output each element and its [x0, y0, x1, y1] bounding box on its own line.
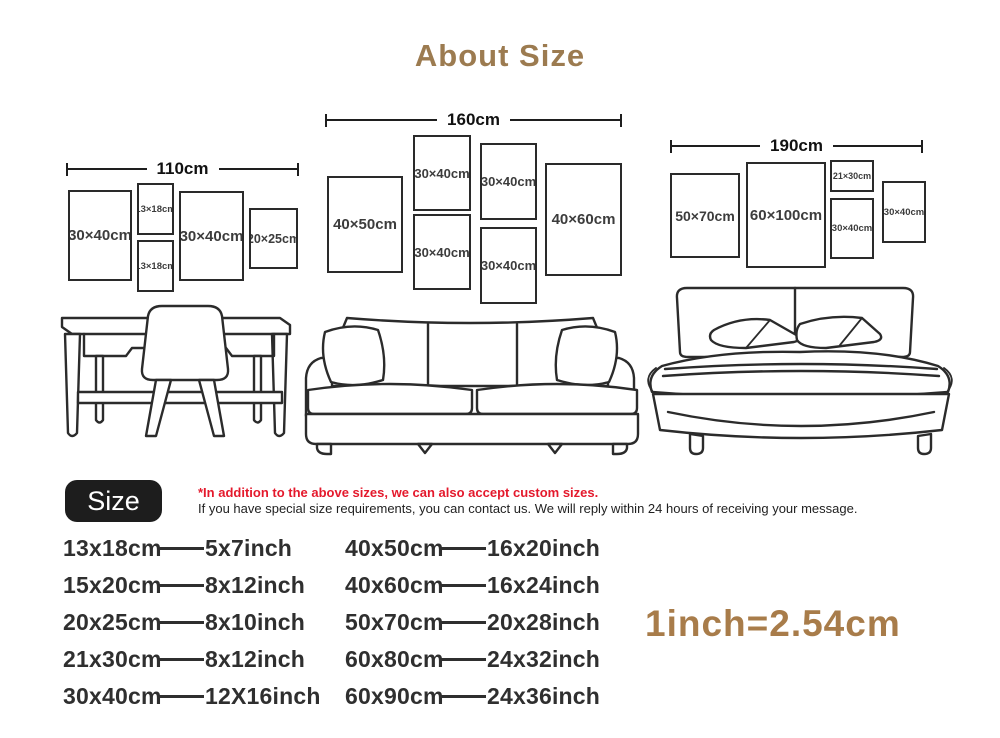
sofa-illustration	[306, 318, 638, 454]
size-badge: Size	[65, 480, 162, 522]
custom-size-note: *In addition to the above sizes, we can …	[198, 485, 598, 500]
inch-size: 8x10inch	[204, 609, 305, 636]
measure-label: 160cm	[447, 110, 500, 130]
dash-connector	[440, 695, 486, 698]
wall-frame-30x40: 30×40cm	[68, 190, 132, 281]
dash-connector	[158, 621, 204, 624]
measure-line	[510, 119, 620, 121]
conversion-row: 21x30cm8x12inch	[63, 641, 321, 678]
cm-size: 21x30cm	[63, 646, 158, 673]
inch-size: 8x12inch	[204, 646, 305, 673]
cm-size: 40x50cm	[345, 535, 440, 562]
cm-size: 50x70cm	[345, 609, 440, 636]
conversion-row: 30x40cm12X16inch	[63, 678, 321, 715]
inch-size: 16x24inch	[486, 572, 600, 599]
wall-frame-13x18: 13×18cm	[137, 183, 174, 235]
dash-connector	[440, 547, 486, 550]
measure-tick-right	[620, 114, 622, 127]
conversion-row: 15x20cm8x12inch	[63, 567, 321, 604]
cm-size: 13x18cm	[63, 535, 158, 562]
width-measure-160cm: 160cm	[325, 111, 622, 129]
measure-tick-right	[297, 163, 299, 176]
conversion-row: 40x50cm16x20inch	[345, 530, 600, 567]
dash-connector	[158, 658, 204, 661]
conversion-column-right: 40x50cm16x20inch 40x60cm16x24inch 50x70c…	[345, 530, 600, 715]
conversion-row: 20x25cm8x10inch	[63, 604, 321, 641]
inch-size: 24x36inch	[486, 683, 600, 710]
conversion-column-left: 13x18cm5x7inch 15x20cm8x12inch 20x25cm8x…	[63, 530, 321, 715]
cm-size: 60x90cm	[345, 683, 440, 710]
measure-line	[68, 168, 147, 170]
dash-connector	[158, 695, 204, 698]
dash-connector	[440, 621, 486, 624]
page-title: About Size	[0, 38, 1000, 74]
wall-frame-40x60: 40×60cm	[545, 163, 622, 276]
inch-cm-formula: 1inch=2.54cm	[645, 603, 901, 645]
measure-line	[833, 145, 921, 147]
size-guide-infographic: About Size 110cm 30×40cm 13×18cm 13×18cm…	[0, 0, 1000, 738]
dash-connector	[440, 658, 486, 661]
wall-frame-30x40: 30×40cm	[882, 181, 926, 243]
measure-label: 110cm	[157, 159, 209, 179]
wall-frame-21x30: 21×30cm	[830, 160, 874, 192]
wall-frame-30x40: 30×40cm	[179, 191, 244, 281]
measure-label: 190cm	[770, 136, 823, 156]
inch-size: 16x20inch	[486, 535, 600, 562]
conversion-row: 60x80cm24x32inch	[345, 641, 600, 678]
measure-line	[672, 145, 760, 147]
cm-size: 15x20cm	[63, 572, 158, 599]
conversion-row: 13x18cm5x7inch	[63, 530, 321, 567]
measure-tick-right	[921, 140, 923, 153]
inch-size: 24x32inch	[486, 646, 600, 673]
width-measure-190cm: 190cm	[670, 137, 923, 155]
wall-frame-50x70: 50×70cm	[670, 173, 740, 258]
wall-frame-30x40: 30×40cm	[413, 135, 471, 211]
wall-frame-30x40: 30×40cm	[830, 198, 874, 259]
dash-connector	[158, 584, 204, 587]
wall-frame-40x50: 40×50cm	[327, 176, 403, 273]
contact-note: If you have special size requirements, y…	[198, 501, 857, 516]
dash-connector	[158, 547, 204, 550]
inch-size: 8x12inch	[204, 572, 305, 599]
cm-size: 60x80cm	[345, 646, 440, 673]
wall-frame-20x25: 20×25cm	[249, 208, 298, 269]
cm-size: 20x25cm	[63, 609, 158, 636]
wall-frame-60x100: 60×100cm	[746, 162, 826, 268]
cm-size: 30x40cm	[63, 683, 158, 710]
cm-size: 40x60cm	[345, 572, 440, 599]
conversion-row: 60x90cm24x36inch	[345, 678, 600, 715]
chair-illustration	[142, 306, 228, 436]
bed-illustration	[648, 288, 952, 454]
furniture-illustrations	[40, 272, 960, 472]
conversion-row: 50x70cm20x28inch	[345, 604, 600, 641]
inch-size: 5x7inch	[204, 535, 292, 562]
conversion-row: 40x60cm16x24inch	[345, 567, 600, 604]
measure-line	[327, 119, 437, 121]
width-measure-110cm: 110cm	[66, 160, 299, 178]
inch-size: 12X16inch	[204, 683, 321, 710]
measure-line	[219, 168, 298, 170]
wall-frame-30x40: 30×40cm	[480, 143, 537, 220]
inch-size: 20x28inch	[486, 609, 600, 636]
dash-connector	[440, 584, 486, 587]
